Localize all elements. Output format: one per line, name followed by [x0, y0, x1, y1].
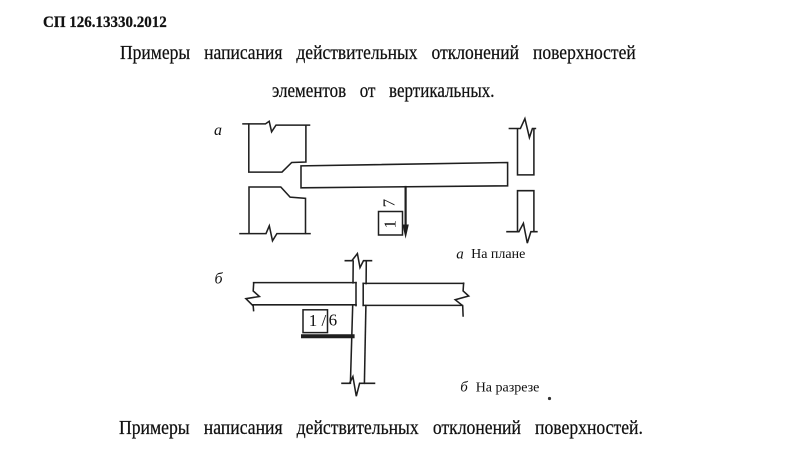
svg-text:6: 6: [329, 311, 338, 330]
svg-text:1: 1: [380, 220, 399, 229]
svg-text:7: 7: [380, 198, 399, 207]
svg-text:а: а: [456, 246, 464, 262]
svg-text:На разрезе: На разрезе: [476, 380, 540, 395]
svg-text:б: б: [460, 379, 468, 395]
svg-text:На плане: На плане: [471, 247, 525, 262]
svg-text:а: а: [214, 122, 222, 139]
svg-text:б: б: [215, 271, 224, 288]
svg-text:1 /: 1 /: [309, 311, 327, 330]
